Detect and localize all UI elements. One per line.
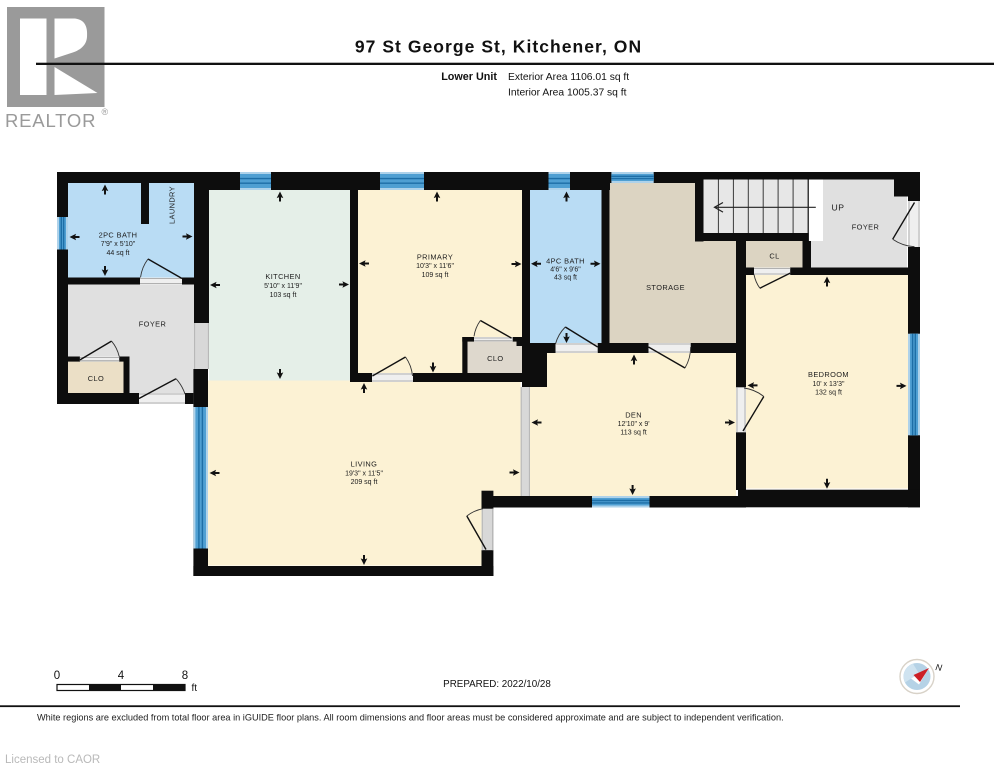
svg-text:CLO: CLO [88, 374, 104, 383]
svg-text:BEDROOM: BEDROOM [808, 370, 849, 379]
svg-text:Lower Unit: Lower Unit [441, 71, 497, 83]
svg-text:19'3" x 11'5": 19'3" x 11'5" [345, 470, 383, 477]
svg-text:43 sq ft: 43 sq ft [554, 274, 577, 281]
svg-text:ft: ft [192, 683, 198, 694]
svg-text:STORAGE: STORAGE [646, 283, 685, 292]
svg-text:CLO: CLO [487, 354, 503, 363]
svg-text:209 sq ft: 209 sq ft [351, 479, 378, 486]
svg-text:Exterior Area 1106.01 sq ft: Exterior Area 1106.01 sq ft [508, 72, 629, 83]
svg-text:10'3" x 11'6": 10'3" x 11'6" [416, 263, 454, 270]
svg-text:132 sq ft: 132 sq ft [815, 389, 842, 396]
svg-text:PREPARED: 2022/10/28: PREPARED: 2022/10/28 [443, 679, 551, 690]
svg-text:DEN: DEN [625, 410, 642, 419]
svg-text:113 sq ft: 113 sq ft [620, 430, 646, 437]
svg-text:44 sq ft: 44 sq ft [107, 250, 130, 257]
svg-text:KITCHEN: KITCHEN [265, 272, 300, 281]
svg-text:Interior Area 1005.37 sq ft: Interior Area 1005.37 sq ft [508, 88, 627, 99]
svg-text:4: 4 [118, 670, 125, 682]
svg-text:LIVING: LIVING [351, 460, 378, 469]
svg-text:109 sq ft: 109 sq ft [422, 272, 449, 279]
svg-text:97 St George St, Kitchener, ON: 97 St George St, Kitchener, ON [355, 37, 642, 57]
svg-text:5'10" x 11'9": 5'10" x 11'9" [264, 283, 302, 290]
svg-text:FOYER: FOYER [852, 223, 879, 232]
svg-text:FOYER: FOYER [139, 320, 166, 329]
svg-text:10' x 13'3": 10' x 13'3" [812, 381, 845, 388]
svg-text:8: 8 [182, 670, 188, 682]
svg-text:®: ® [102, 107, 109, 117]
svg-text:7'9" x 5'10": 7'9" x 5'10" [101, 241, 136, 248]
svg-text:White regions are excluded fro: White regions are excluded from total fl… [37, 713, 784, 723]
svg-text:103 sq ft: 103 sq ft [270, 292, 297, 299]
svg-text:LAUNDRY: LAUNDRY [168, 186, 177, 224]
svg-text:Licensed to CAOR: Licensed to CAOR [5, 754, 100, 766]
svg-text:4'6" x 9'6": 4'6" x 9'6" [550, 266, 581, 273]
svg-text:PRIMARY: PRIMARY [417, 253, 453, 262]
svg-text:4PC BATH: 4PC BATH [546, 257, 585, 266]
svg-text:REALTOR: REALTOR [5, 110, 96, 131]
svg-text:UP: UP [832, 203, 845, 213]
svg-text:CL: CL [769, 252, 779, 261]
svg-text:2PC BATH: 2PC BATH [99, 230, 138, 239]
svg-text:12'10" x 9': 12'10" x 9' [618, 421, 650, 428]
svg-text:0: 0 [54, 670, 60, 682]
